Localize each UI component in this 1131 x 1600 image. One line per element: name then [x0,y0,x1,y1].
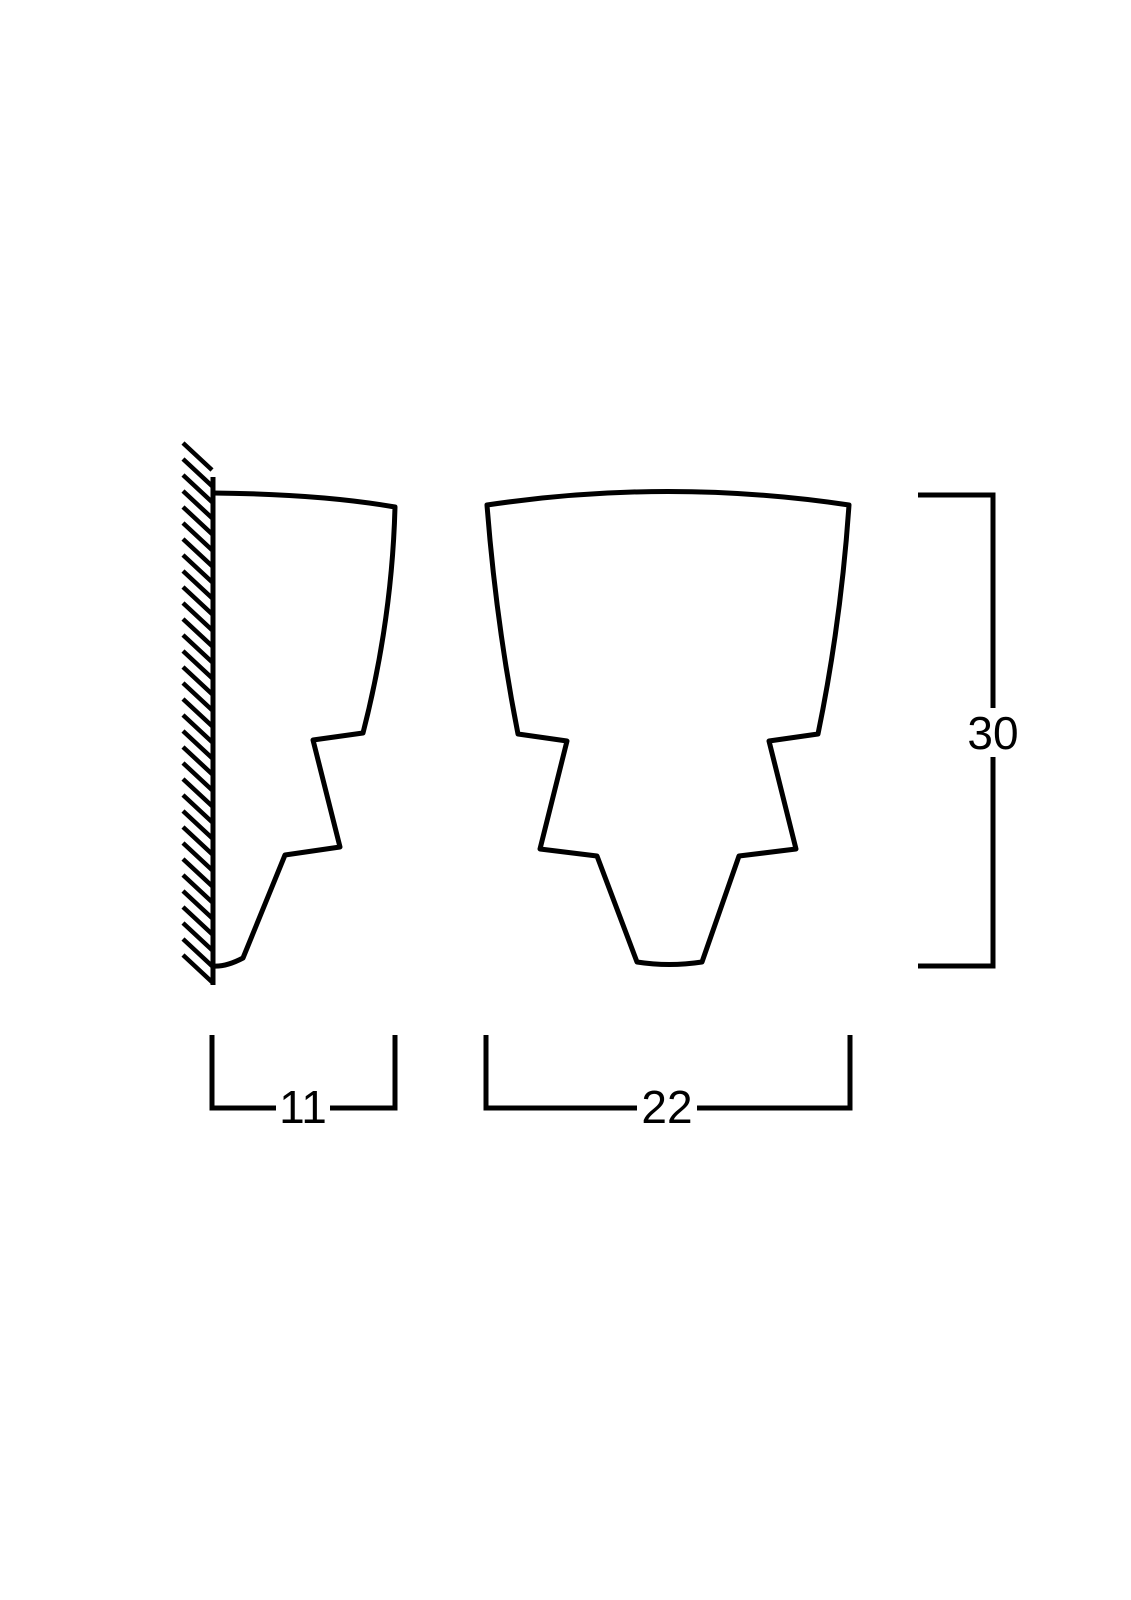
dimension-side-depth-left-bracket [212,1035,276,1108]
dimension-side-depth-label: 11 [279,1081,327,1133]
dimension-front-width-right-bracket [697,1035,850,1108]
dimension-front-width-left-bracket [486,1035,637,1108]
technical-drawing-page: 11 22 30 [0,0,1131,1600]
dimension-height-top-bracket [918,495,993,708]
front-view-outline [487,492,849,965]
dimension-front-width: 22 [486,1035,850,1133]
dimension-height-label: 30 [967,707,1018,759]
dimension-front-width-label: 22 [641,1081,692,1133]
dimension-height: 30 [918,495,1019,966]
dimension-side-depth-right-bracket [330,1035,395,1108]
dimension-height-bottom-bracket [918,757,993,966]
dimension-side-depth: 11 [212,1035,395,1133]
wall-hatching [183,443,212,982]
side-view-outline [213,493,395,966]
technical-drawing-canvas: 11 22 30 [0,0,1131,1600]
